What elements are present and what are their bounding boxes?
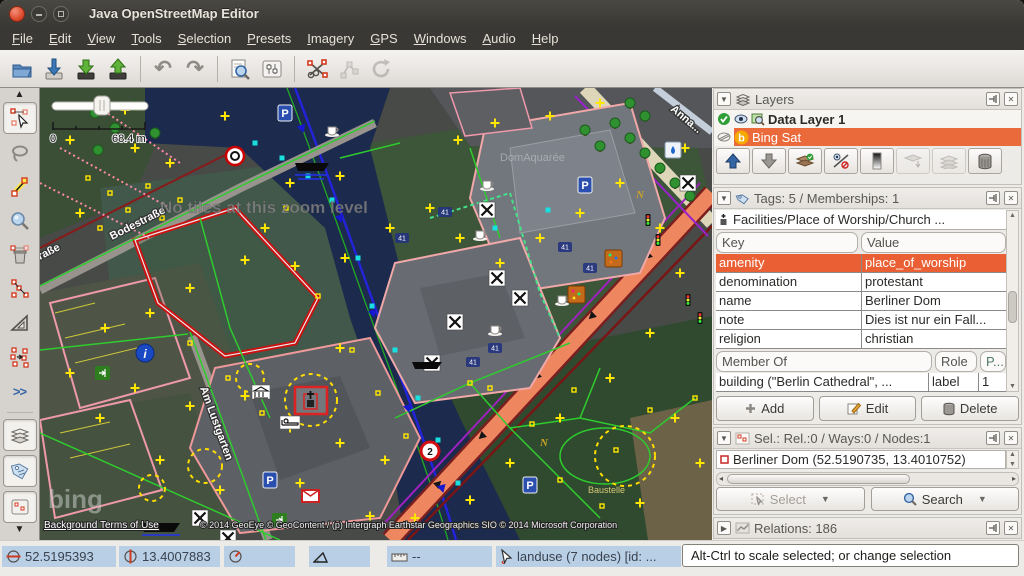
svg-text:41: 41 [398, 236, 406, 243]
more-tools-button[interactable]: >> [4, 376, 36, 406]
dropdown-arrow-icon: ▼ [978, 494, 987, 504]
opacity-button[interactable] [860, 148, 894, 174]
svg-text:41: 41 [491, 346, 499, 353]
layers-icon [735, 92, 751, 106]
heading-readout [224, 546, 295, 567]
key-column-header[interactable]: Key [716, 232, 858, 253]
layer-name: Bing Sat [752, 130, 801, 145]
value-column-header[interactable]: Value [861, 232, 1006, 253]
panel-title: Relations: 186 [754, 521, 982, 536]
position-column-header[interactable]: P... [980, 351, 1006, 372]
toggle-tags[interactable] [3, 455, 37, 487]
status-hint: Alt-Ctrl to scale selected; or change se… [682, 544, 1019, 567]
extrude-tool[interactable] [4, 308, 36, 338]
svg-text:P: P [266, 475, 273, 487]
pencil-icon [847, 402, 861, 415]
panel-title: Sel.: Rel.:0 / Ways:0 / Nodes:1 [754, 431, 982, 446]
angle-readout [309, 546, 370, 567]
toggle-selection[interactable] [3, 491, 37, 523]
longitude-readout: 13.4007883 [119, 546, 220, 567]
heading-icon [228, 549, 243, 564]
bing-layer-icon: b [734, 130, 749, 145]
selection-scrollbar[interactable]: ▲▼ [1006, 450, 1019, 469]
svg-text:P: P [526, 480, 533, 492]
tags-panel: ▼ Tags: 5 / Memberships: 1 ✕ Facilities/… [713, 187, 1022, 425]
redo-icon[interactable]: ↷ [179, 54, 211, 84]
delete-tag-button[interactable]: Delete [921, 396, 1019, 421]
collapse-panel-icon[interactable]: ▼ [717, 92, 731, 106]
select-button[interactable]: Select ▼ [716, 487, 865, 511]
menu-audio[interactable]: Audio [474, 28, 523, 49]
ruler-icon [391, 552, 408, 562]
close-panel-icon[interactable]: ✕ [1004, 521, 1018, 535]
menu-imagery[interactable]: Imagery [299, 28, 362, 49]
menu-presets[interactable]: Presets [239, 28, 299, 49]
move-layer-down-button[interactable] [752, 148, 786, 174]
distance-readout: -- [387, 546, 492, 567]
trash-icon [943, 402, 955, 416]
layer-row-data[interactable]: Data Layer 1 [714, 110, 1021, 128]
angle-icon [313, 550, 329, 564]
delete-layer-button[interactable] [968, 148, 1002, 174]
panel-title: Layers [755, 92, 982, 107]
node-icon [720, 455, 729, 464]
split-way-icon[interactable] [301, 54, 333, 84]
plus-icon [745, 403, 756, 414]
statusbar: 52.5195393 13.4007883 -- landuse (7 node… [0, 540, 1024, 576]
josm-window: Java OpenStreetMap Editor File Edit View… [0, 0, 1024, 576]
close-window-icon[interactable] [9, 6, 25, 22]
tag-row[interactable]: amenityplace_of_worship [716, 254, 1006, 273]
close-panel-icon[interactable]: ✕ [1004, 92, 1018, 106]
select-mode-icon [751, 493, 765, 506]
tag-icon [735, 192, 750, 205]
dock-panel-column: ▼ Layers ✕ Data Layer 1 b Bing Sa [712, 88, 1023, 540]
mail-icon [302, 490, 319, 502]
edit-tool-sidebar: ▲ >> [0, 88, 40, 540]
svg-text:41: 41 [441, 210, 449, 217]
preset-label: Facilities/Place of Worship/Church ... [733, 212, 945, 227]
hovered-object-readout: landuse (7 nodes) [id: ... [496, 546, 681, 567]
fountain-icon [665, 142, 681, 158]
svg-text:b: b [738, 132, 745, 144]
speed-sign-icon: 2 [421, 442, 439, 460]
stick-panel-icon[interactable] [986, 191, 1000, 205]
menu-selection[interactable]: Selection [170, 28, 239, 49]
panel-title: Tags: 5 / Memberships: 1 [754, 191, 982, 206]
add-tag-button[interactable]: Add [716, 396, 814, 421]
tools-scroll-down-icon[interactable]: ▼ [15, 525, 25, 535]
show-hide-layer-button[interactable] [824, 148, 858, 174]
merge-layer-button[interactable] [896, 148, 930, 174]
stick-panel-icon[interactable] [986, 431, 1000, 445]
duplicate-layer-button[interactable] [932, 148, 966, 174]
parallel-way-tool[interactable] [4, 342, 36, 372]
roundabout-sign-icon [226, 147, 244, 165]
close-panel-icon[interactable]: ✕ [1004, 431, 1018, 445]
menu-edit[interactable]: Edit [41, 28, 79, 49]
svg-text:41: 41 [469, 360, 477, 367]
info-icon: i [136, 344, 154, 362]
undo-icon[interactable]: ↶ [147, 54, 179, 84]
layer-name: Data Layer 1 [768, 112, 845, 127]
preferences-icon[interactable] [256, 54, 288, 84]
n-marker: N [635, 189, 645, 201]
tag-row[interactable]: nameBerliner Dom [716, 292, 1006, 311]
tag-table: Key Value amenityplace_of_worship denomi… [716, 231, 1006, 392]
longitude-icon [123, 549, 138, 564]
tag-row[interactable]: noteDies ist nur ein Fall... [716, 311, 1006, 330]
select-tool[interactable] [3, 102, 37, 134]
active-check-icon [717, 112, 731, 126]
unglue-node-icon[interactable] [333, 54, 365, 84]
window-title: Java OpenStreetMap Editor [89, 6, 259, 21]
search-icon[interactable] [224, 54, 256, 84]
draw-nodes-tool[interactable] [4, 172, 36, 202]
membership-row[interactable]: building ("Berlin Cathedral", ... label … [716, 373, 1006, 392]
activate-layer-button[interactable] [788, 148, 822, 174]
tag-row[interactable]: religionchristian [716, 330, 1006, 349]
n-marker: N [539, 437, 549, 449]
visible-eye-icon[interactable] [734, 114, 748, 124]
selection-icon [735, 432, 750, 445]
member-of-column-header[interactable]: Member Of [716, 351, 932, 372]
search-icon [903, 492, 917, 506]
download-data-icon[interactable] [38, 54, 70, 84]
titlebar: Java OpenStreetMap Editor [0, 0, 1024, 27]
tools-scroll-up-icon[interactable]: ▲ [15, 90, 25, 100]
collapse-panel-icon[interactable]: ▼ [717, 431, 731, 445]
bing-logo: bing [48, 484, 103, 514]
tag-row[interactable]: denominationprotestant [716, 273, 1006, 292]
merge-nodes-tool[interactable] [4, 274, 36, 304]
zoom-tool[interactable] [4, 206, 36, 236]
cursor-icon [500, 549, 513, 564]
selection-list-item[interactable]: Berliner Dom (52.5190735, 13.4010752) [716, 450, 1006, 469]
selected-church-node[interactable] [295, 387, 327, 414]
data-layer-icon [751, 112, 765, 126]
selection-hscrollbar[interactable]: ◂ ▸ [716, 472, 1019, 486]
hotel-icon [280, 416, 300, 429]
svg-text:2: 2 [427, 447, 433, 458]
open-file-icon[interactable] [6, 54, 38, 84]
map-canvas[interactable]: P P P P 41 41 41 41 41 41 i [40, 88, 712, 540]
move-layer-up-button[interactable] [716, 148, 750, 174]
selection-panel: ▼ Sel.: Rel.:0 / Ways:0 / Nodes:1 ✕ Berl… [713, 427, 1022, 515]
latitude-icon [6, 549, 21, 564]
menu-view[interactable]: View [79, 28, 123, 49]
imagery-attribution: © 2014 GeoEye © GeoContent / (p) Intergr… [200, 520, 617, 530]
close-panel-icon[interactable]: ✕ [1004, 191, 1018, 205]
menu-help[interactable]: Help [524, 28, 567, 49]
download-along-icon[interactable] [70, 54, 102, 84]
search-button[interactable]: Search ▼ [871, 487, 1020, 511]
svg-text:P: P [581, 180, 588, 192]
svg-text:0: 0 [50, 133, 56, 145]
svg-text:68.4 m: 68.4 m [112, 133, 146, 145]
svg-text:41: 41 [586, 266, 594, 273]
refresh-icon[interactable] [365, 54, 397, 84]
svg-text:41: 41 [561, 245, 569, 252]
menu-file[interactable]: File [4, 28, 41, 49]
tags-scrollbar[interactable]: ▲ ▼ [1006, 210, 1019, 392]
stick-panel-icon[interactable] [986, 92, 1000, 106]
relation-icon [735, 522, 750, 534]
hidden-eye-icon[interactable] [717, 132, 731, 142]
stick-panel-icon[interactable] [986, 521, 1000, 535]
latitude-readout: 52.5195393 [2, 546, 116, 567]
museum-icon [252, 385, 270, 399]
delete-tool[interactable] [4, 240, 36, 270]
minimize-window-icon[interactable] [31, 6, 47, 22]
menu-tools[interactable]: Tools [123, 28, 169, 49]
preset-row[interactable]: Facilities/Place of Worship/Church ... [716, 210, 1006, 230]
terms-of-use-link[interactable]: Background Terms of Use [44, 520, 159, 531]
expand-panel-icon[interactable]: ▶ [717, 521, 731, 535]
relations-panel: ▶ Relations: 186 ✕ [713, 517, 1022, 539]
church-preset-icon [718, 213, 729, 226]
baustelle-label: Baustelle [588, 485, 625, 495]
layers-panel: ▼ Layers ✕ Data Layer 1 b Bing Sa [713, 88, 1022, 185]
toggle-layers[interactable] [3, 419, 37, 451]
layer-row-bing[interactable]: b Bing Sat [714, 128, 1021, 146]
role-column-header[interactable]: Role [935, 351, 977, 372]
svg-text:P: P [281, 108, 288, 120]
maximize-window-icon[interactable] [53, 6, 69, 22]
upload-data-icon[interactable] [102, 54, 134, 84]
edit-tag-button[interactable]: Edit [819, 396, 917, 421]
menubar: File Edit View Tools Selection Presets I… [0, 27, 1024, 50]
menu-gps[interactable]: GPS [362, 28, 405, 49]
dropdown-arrow-icon: ▼ [821, 494, 830, 504]
collapse-panel-icon[interactable]: ▼ [717, 191, 731, 205]
menu-windows[interactable]: Windows [406, 28, 475, 49]
lasso-tool[interactable] [4, 138, 36, 168]
main-toolbar: ↶ ↷ [0, 50, 1024, 88]
area-label: DomAquarée [500, 152, 565, 164]
no-tiles-message: No tiles at this zoom level [160, 198, 368, 217]
